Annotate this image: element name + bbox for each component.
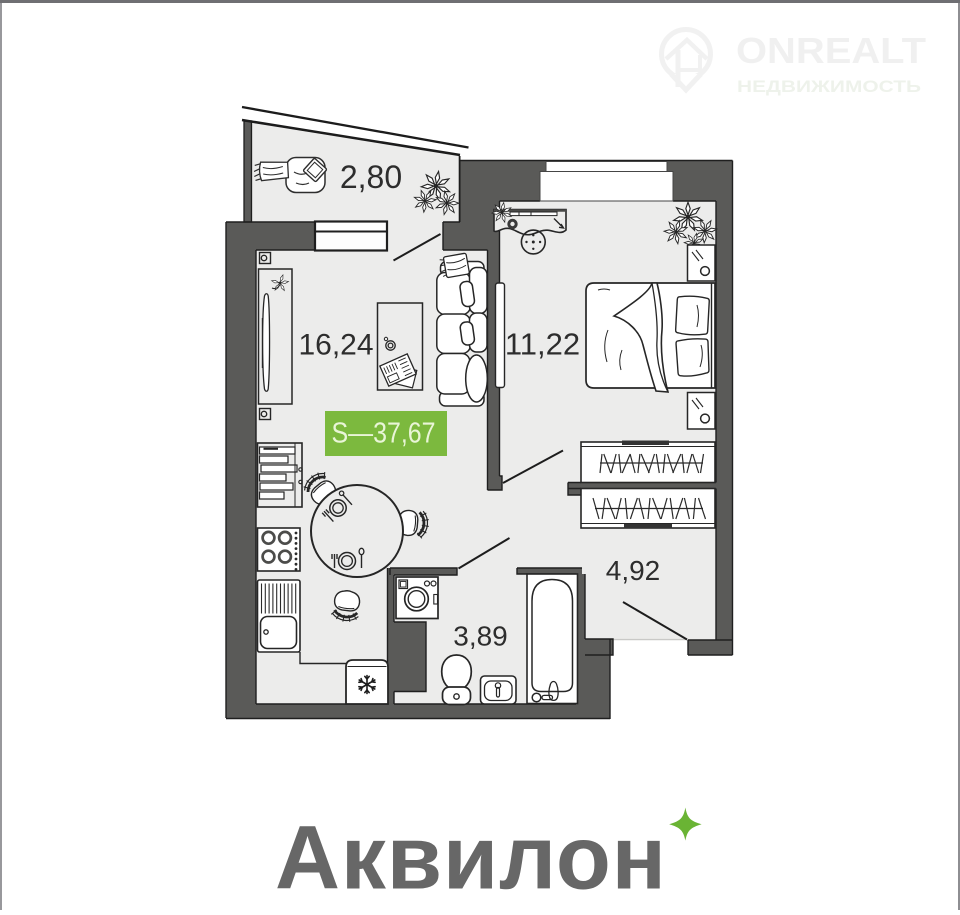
svg-text:S—37,67: S—37,67	[332, 418, 436, 450]
svg-text:11,22: 11,22	[505, 327, 580, 362]
svg-text:Аквилон: Аквилон	[275, 809, 666, 909]
svg-text:4,92: 4,92	[606, 555, 661, 586]
svg-text:НЕДВИЖИМОСТЬ: НЕДВИЖИМОСТЬ	[737, 78, 921, 96]
svg-text:16,24: 16,24	[298, 329, 373, 362]
svg-text:2,80: 2,80	[340, 159, 402, 195]
svg-text:ONREALT: ONREALT	[736, 30, 926, 71]
svg-text:3,89: 3,89	[453, 621, 508, 652]
